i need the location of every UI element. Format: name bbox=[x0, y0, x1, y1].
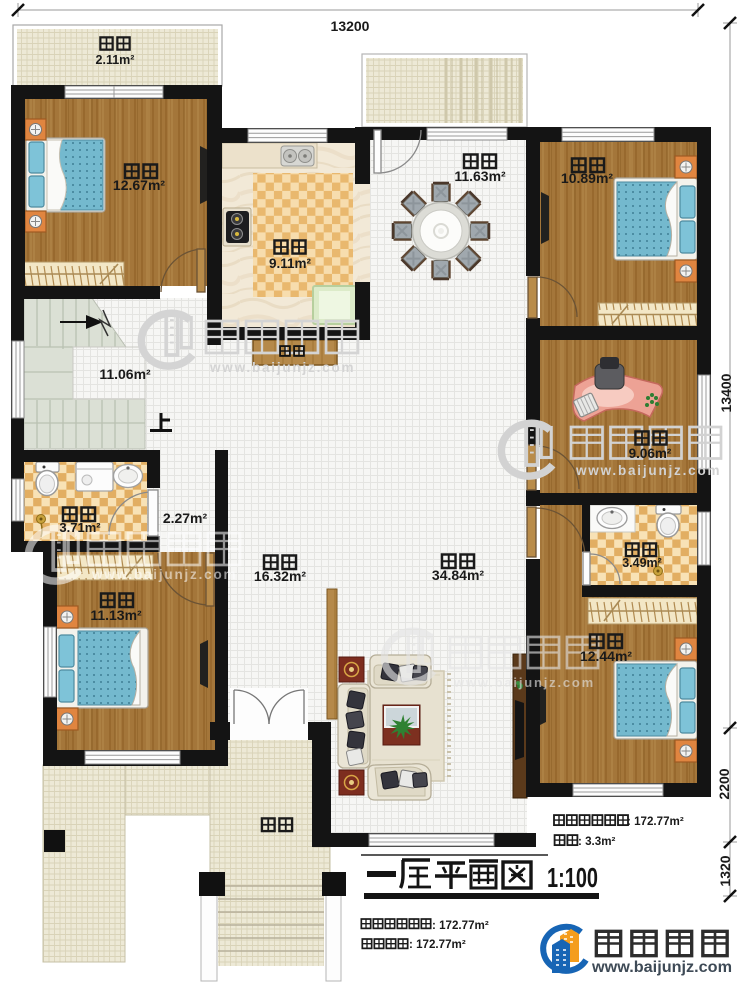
svg-text:: 3.3m²: : 3.3m² bbox=[578, 835, 616, 848]
svg-text:2.11m²: 2.11m² bbox=[96, 53, 135, 67]
svg-text:: 172.77m²: : 172.77m² bbox=[627, 815, 684, 828]
svg-text:www.baijunjz.com: www.baijunjz.com bbox=[91, 567, 237, 582]
svg-text:3.71m²: 3.71m² bbox=[59, 520, 101, 535]
svg-text:9.11m²: 9.11m² bbox=[269, 256, 312, 271]
svg-text:www.baijunjz.com: www.baijunjz.com bbox=[209, 360, 355, 375]
svg-text:13200: 13200 bbox=[331, 18, 370, 34]
svg-text:: 172.77m²: : 172.77m² bbox=[432, 919, 489, 932]
svg-text:2200: 2200 bbox=[716, 768, 732, 799]
svg-text:2.27m²: 2.27m² bbox=[163, 510, 208, 526]
svg-text:3.49m²: 3.49m² bbox=[622, 556, 662, 570]
svg-text:11.63m²: 11.63m² bbox=[454, 168, 506, 184]
svg-text:11.13m²: 11.13m² bbox=[90, 607, 142, 623]
svg-text:www.baijunjz.com: www.baijunjz.com bbox=[575, 463, 721, 478]
svg-text:12.44m²: 12.44m² bbox=[580, 648, 632, 664]
svg-text:34.84m²: 34.84m² bbox=[432, 567, 484, 583]
svg-text:13400: 13400 bbox=[718, 373, 734, 412]
svg-text:16.32m²: 16.32m² bbox=[254, 568, 306, 584]
svg-text:10.89m²: 10.89m² bbox=[561, 170, 613, 186]
svg-text:1320: 1320 bbox=[717, 855, 733, 886]
svg-text:www.baijunjz.com: www.baijunjz.com bbox=[591, 959, 732, 976]
svg-text:12.67m²: 12.67m² bbox=[113, 177, 165, 193]
svg-text:11.06m²: 11.06m² bbox=[99, 366, 151, 382]
svg-text:www.baijunjz.com: www.baijunjz.com bbox=[453, 675, 595, 690]
svg-text:: 172.77m²: : 172.77m² bbox=[409, 938, 466, 951]
svg-text:1:100: 1:100 bbox=[547, 862, 598, 893]
svg-text:9.06m²: 9.06m² bbox=[629, 446, 672, 461]
